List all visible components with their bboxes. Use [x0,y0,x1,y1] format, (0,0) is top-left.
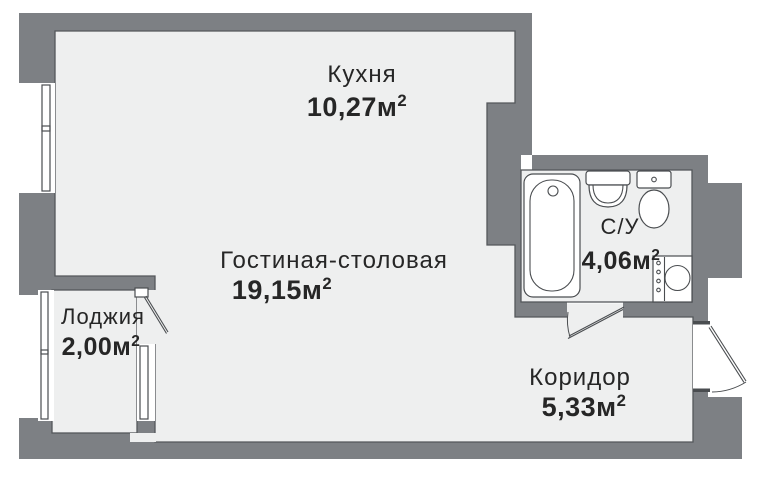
door-swing-arc [712,382,746,392]
area-superscript: 2 [397,91,407,110]
room-label-kitchen: Кухня [327,63,396,87]
area-value: 19,15м [232,275,323,305]
area-superscript: 2 [322,274,332,293]
room-label-loggia: Лоджия [61,306,145,328]
area-value: 5,33м [542,392,617,422]
room-area-living: 19,15м2 [232,276,332,304]
room-label-living: Гостиная-столовая [220,249,448,273]
bathtub-icon [524,174,580,297]
loggia-door-threshold [135,288,148,297]
area-superscript: 2 [617,391,627,410]
entrance-door-sill [693,322,710,392]
room-area-loggia: 2,00м2 [62,334,141,360]
toilet-icon [637,171,671,228]
entrance-door [693,321,746,392]
bathroom-doorway [567,304,623,319]
room-area-kitchen: 10,27м2 [307,93,407,121]
kitchen-window [37,83,55,193]
room-area-bathroom: 4,06м2 [582,248,661,274]
area-superscript: 2 [131,333,140,350]
area-superscript: 2 [651,247,660,264]
room-area-corridor: 5,33м2 [542,393,627,421]
room-label-bathroom: С/У [601,216,640,238]
floor-plan: Кухня 10,27м2 Гостиная-столовая 19,15м2 … [0,0,761,480]
area-value: 2,00м [62,333,132,361]
loggia-window-upper [38,290,54,421]
area-value: 10,27м [307,92,398,122]
room-label-corridor: Коридор [529,366,631,390]
area-value: 4,06м [582,247,652,275]
